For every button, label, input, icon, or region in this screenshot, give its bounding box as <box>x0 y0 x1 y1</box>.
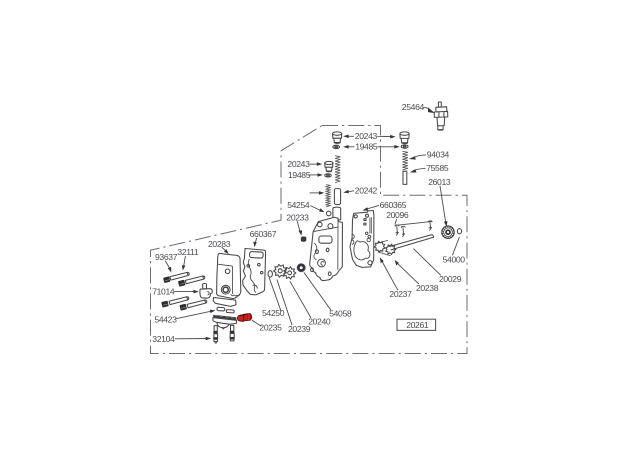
svg-text:20283: 20283 <box>208 239 231 249</box>
svg-text:660367: 660367 <box>250 229 277 239</box>
svg-text:20261: 20261 <box>406 320 429 330</box>
svg-text:20243: 20243 <box>287 159 310 169</box>
svg-text:94034: 94034 <box>427 150 450 160</box>
svg-text:20029: 20029 <box>439 274 462 284</box>
svg-text:54250: 54250 <box>262 308 285 318</box>
svg-text:20242: 20242 <box>355 186 378 196</box>
svg-text:20235: 20235 <box>259 323 282 333</box>
svg-text:20243: 20243 <box>355 131 378 141</box>
svg-text:54058: 54058 <box>329 309 352 319</box>
svg-text:25464: 25464 <box>402 102 425 112</box>
svg-text:32111: 32111 <box>177 247 198 257</box>
svg-text:660365: 660365 <box>380 200 407 210</box>
svg-text:19485: 19485 <box>288 170 311 180</box>
svg-text:20238: 20238 <box>416 283 439 293</box>
svg-text:26013: 26013 <box>428 177 451 187</box>
svg-text:93637: 93637 <box>155 252 178 262</box>
svg-text:54254: 54254 <box>287 200 310 210</box>
svg-text:20240: 20240 <box>308 316 331 326</box>
svg-text:75585: 75585 <box>426 163 449 173</box>
svg-text:71014: 71014 <box>152 287 175 297</box>
svg-text:54000: 54000 <box>443 254 466 264</box>
svg-text:20096: 20096 <box>386 210 409 220</box>
svg-text:54423: 54423 <box>154 314 177 324</box>
svg-text:19485: 19485 <box>355 142 378 152</box>
svg-text:20237: 20237 <box>389 289 412 299</box>
svg-text:20233: 20233 <box>286 212 309 222</box>
svg-text:32104: 32104 <box>152 334 175 344</box>
